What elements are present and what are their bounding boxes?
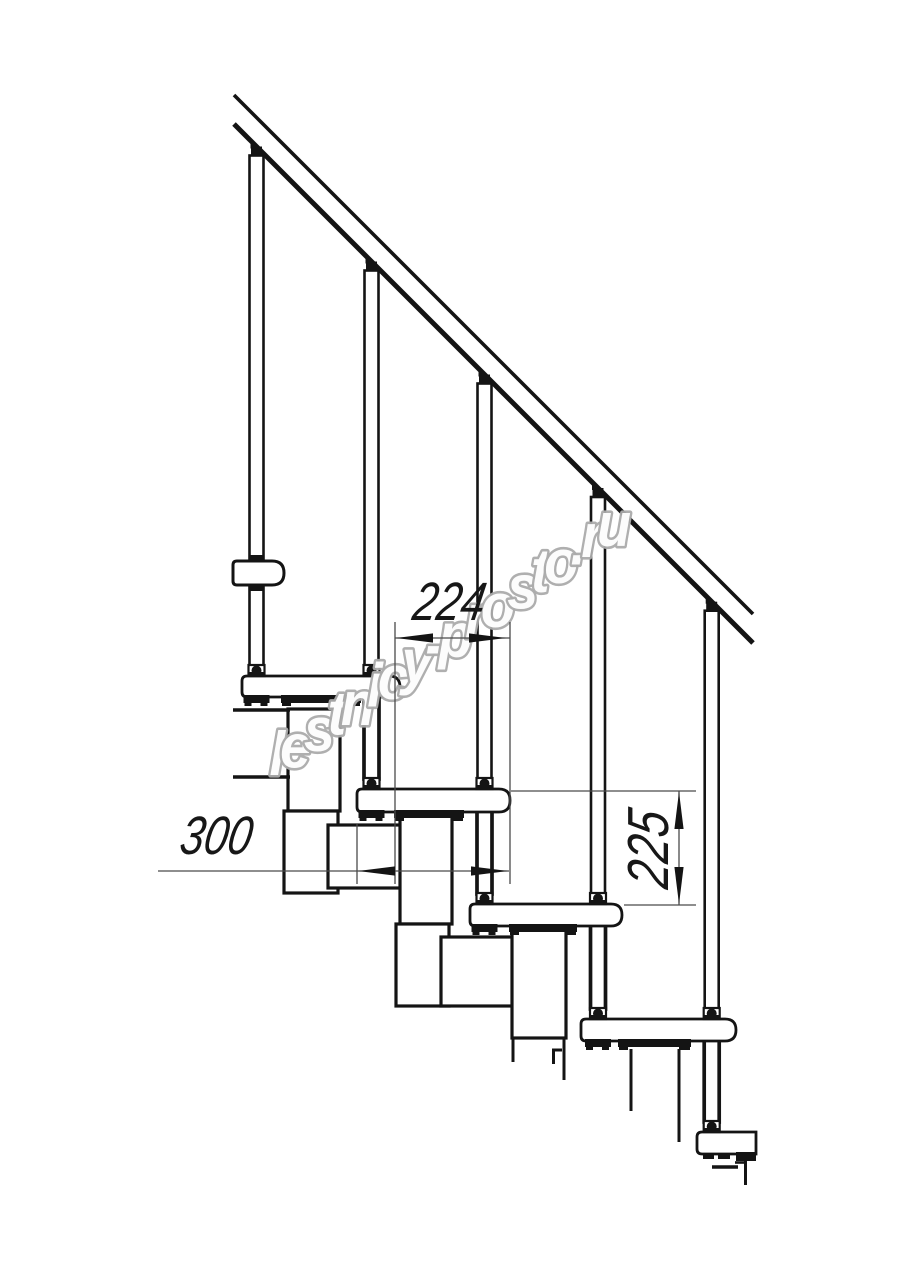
svg-text:224: 224 (408, 573, 490, 632)
svg-text:300: 300 (176, 807, 258, 866)
svg-text:225: 225 (616, 804, 681, 893)
